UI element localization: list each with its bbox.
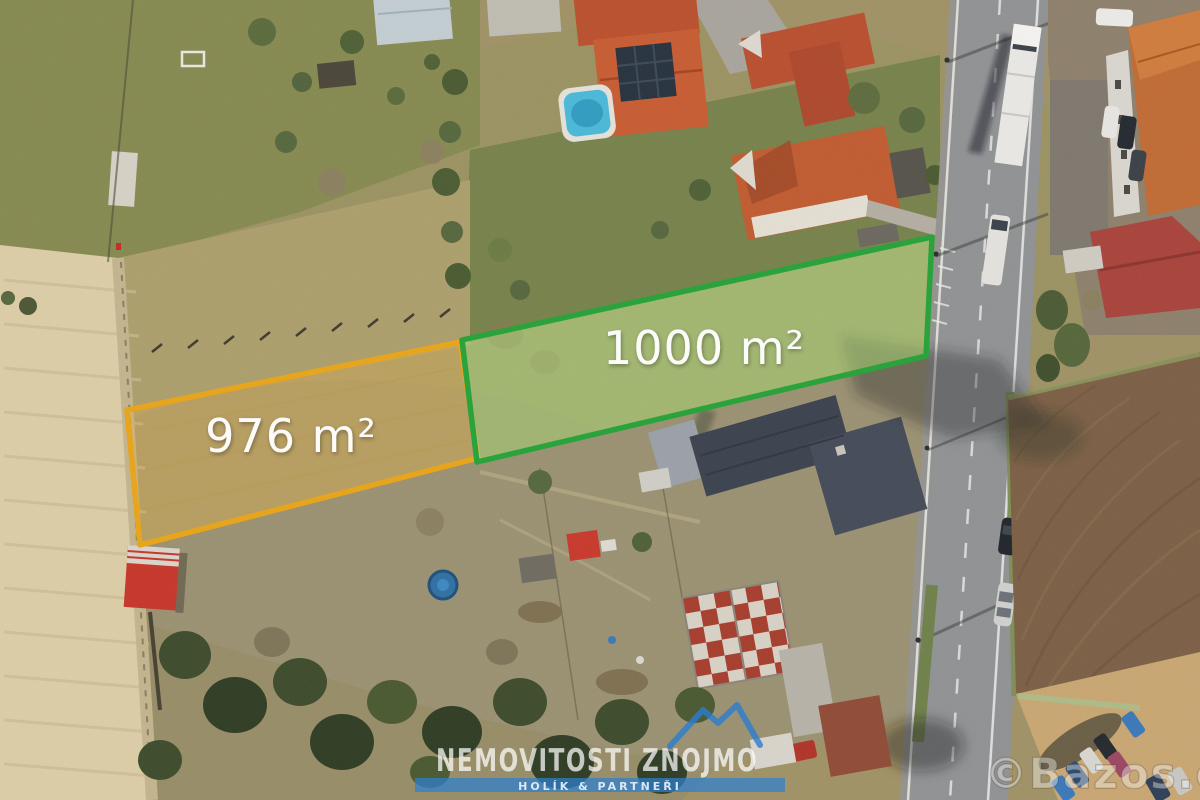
copyright-watermark: ©Bazos.cz [985,749,1200,798]
plot-976-label: 976 m² [205,409,377,463]
agency-tagline: HOLÍK & PARTNEŘI [518,780,682,793]
agency-name: NEMOVITOSTI ZNOJMO [436,743,758,779]
aerial-photo-canvas: 976 m² 1000 m² NEMOVITOSTI ZNOJMO HOLÍK … [0,0,1200,800]
plot-1000-label: 1000 m² [603,321,805,375]
aerial-photo: 976 m² 1000 m² NEMOVITOSTI ZNOJMO HOLÍK … [0,0,1200,800]
